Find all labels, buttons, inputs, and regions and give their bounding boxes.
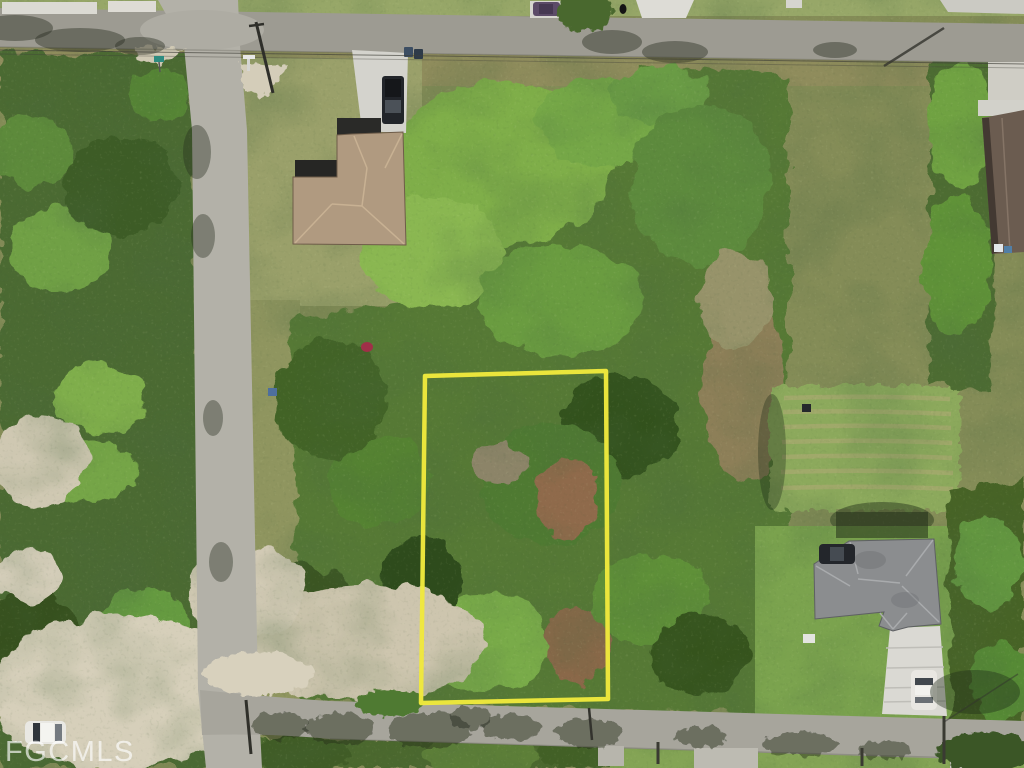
road-apron [598, 746, 624, 766]
aerial-photo-canvas: FGCMLS [0, 0, 1024, 768]
driveway-seam [886, 647, 943, 648]
patio-item [1004, 246, 1012, 253]
truck-bed [385, 79, 401, 97]
concrete-pad [108, 1, 156, 12]
driveway-north-b [636, 0, 694, 18]
tree-shadow [203, 400, 223, 436]
sand-curb [203, 652, 313, 696]
sign-post [159, 62, 160, 72]
tree-shadow [859, 741, 911, 759]
overhanging-canopy [356, 690, 424, 716]
house-shadow [836, 512, 928, 538]
aerial-photo: FGCMLS [0, 0, 1024, 768]
trash-bin [414, 49, 423, 59]
tree-shadow [183, 125, 211, 179]
tree-shadow [482, 714, 542, 740]
dark-figure [620, 4, 627, 14]
street-sign [243, 55, 255, 59]
tree-shadow [674, 726, 726, 748]
watermark-text: FGCMLS [5, 736, 135, 768]
roof-stain [854, 551, 886, 569]
car-windshield [915, 678, 933, 685]
roof-stain [891, 592, 919, 608]
tree-shadow [450, 706, 490, 730]
concrete-pad [2, 2, 97, 14]
concrete-pad [786, 0, 802, 8]
driveway-seam [886, 667, 944, 668]
tree-shadow [306, 713, 374, 745]
field-edge-shadow [758, 394, 786, 510]
leaf-shadow-texture [0, 0, 1024, 768]
purple-car-roof [539, 4, 553, 14]
corner-pavement [940, 0, 1024, 14]
car-rear-window [915, 697, 933, 703]
road-apron [694, 748, 758, 768]
sign-post [247, 59, 250, 71]
red-shrub [361, 342, 373, 352]
tree-shadow [762, 732, 838, 756]
tree-shadow [35, 28, 125, 52]
utility-box [803, 634, 815, 643]
tree-shadow [209, 542, 233, 582]
blue-object [268, 388, 277, 396]
tree-shadow [582, 30, 642, 54]
mower-object [802, 404, 811, 412]
dark-roof-section [295, 160, 338, 177]
patio-item [994, 244, 1003, 252]
truck-cab [385, 100, 401, 113]
suv-roof [830, 547, 844, 561]
lawn-tree-shadow [930, 670, 1020, 714]
tree-shadow [813, 42, 857, 58]
street-sign [154, 56, 164, 62]
tree-shadow [191, 214, 215, 258]
tree-shadow [252, 712, 308, 740]
